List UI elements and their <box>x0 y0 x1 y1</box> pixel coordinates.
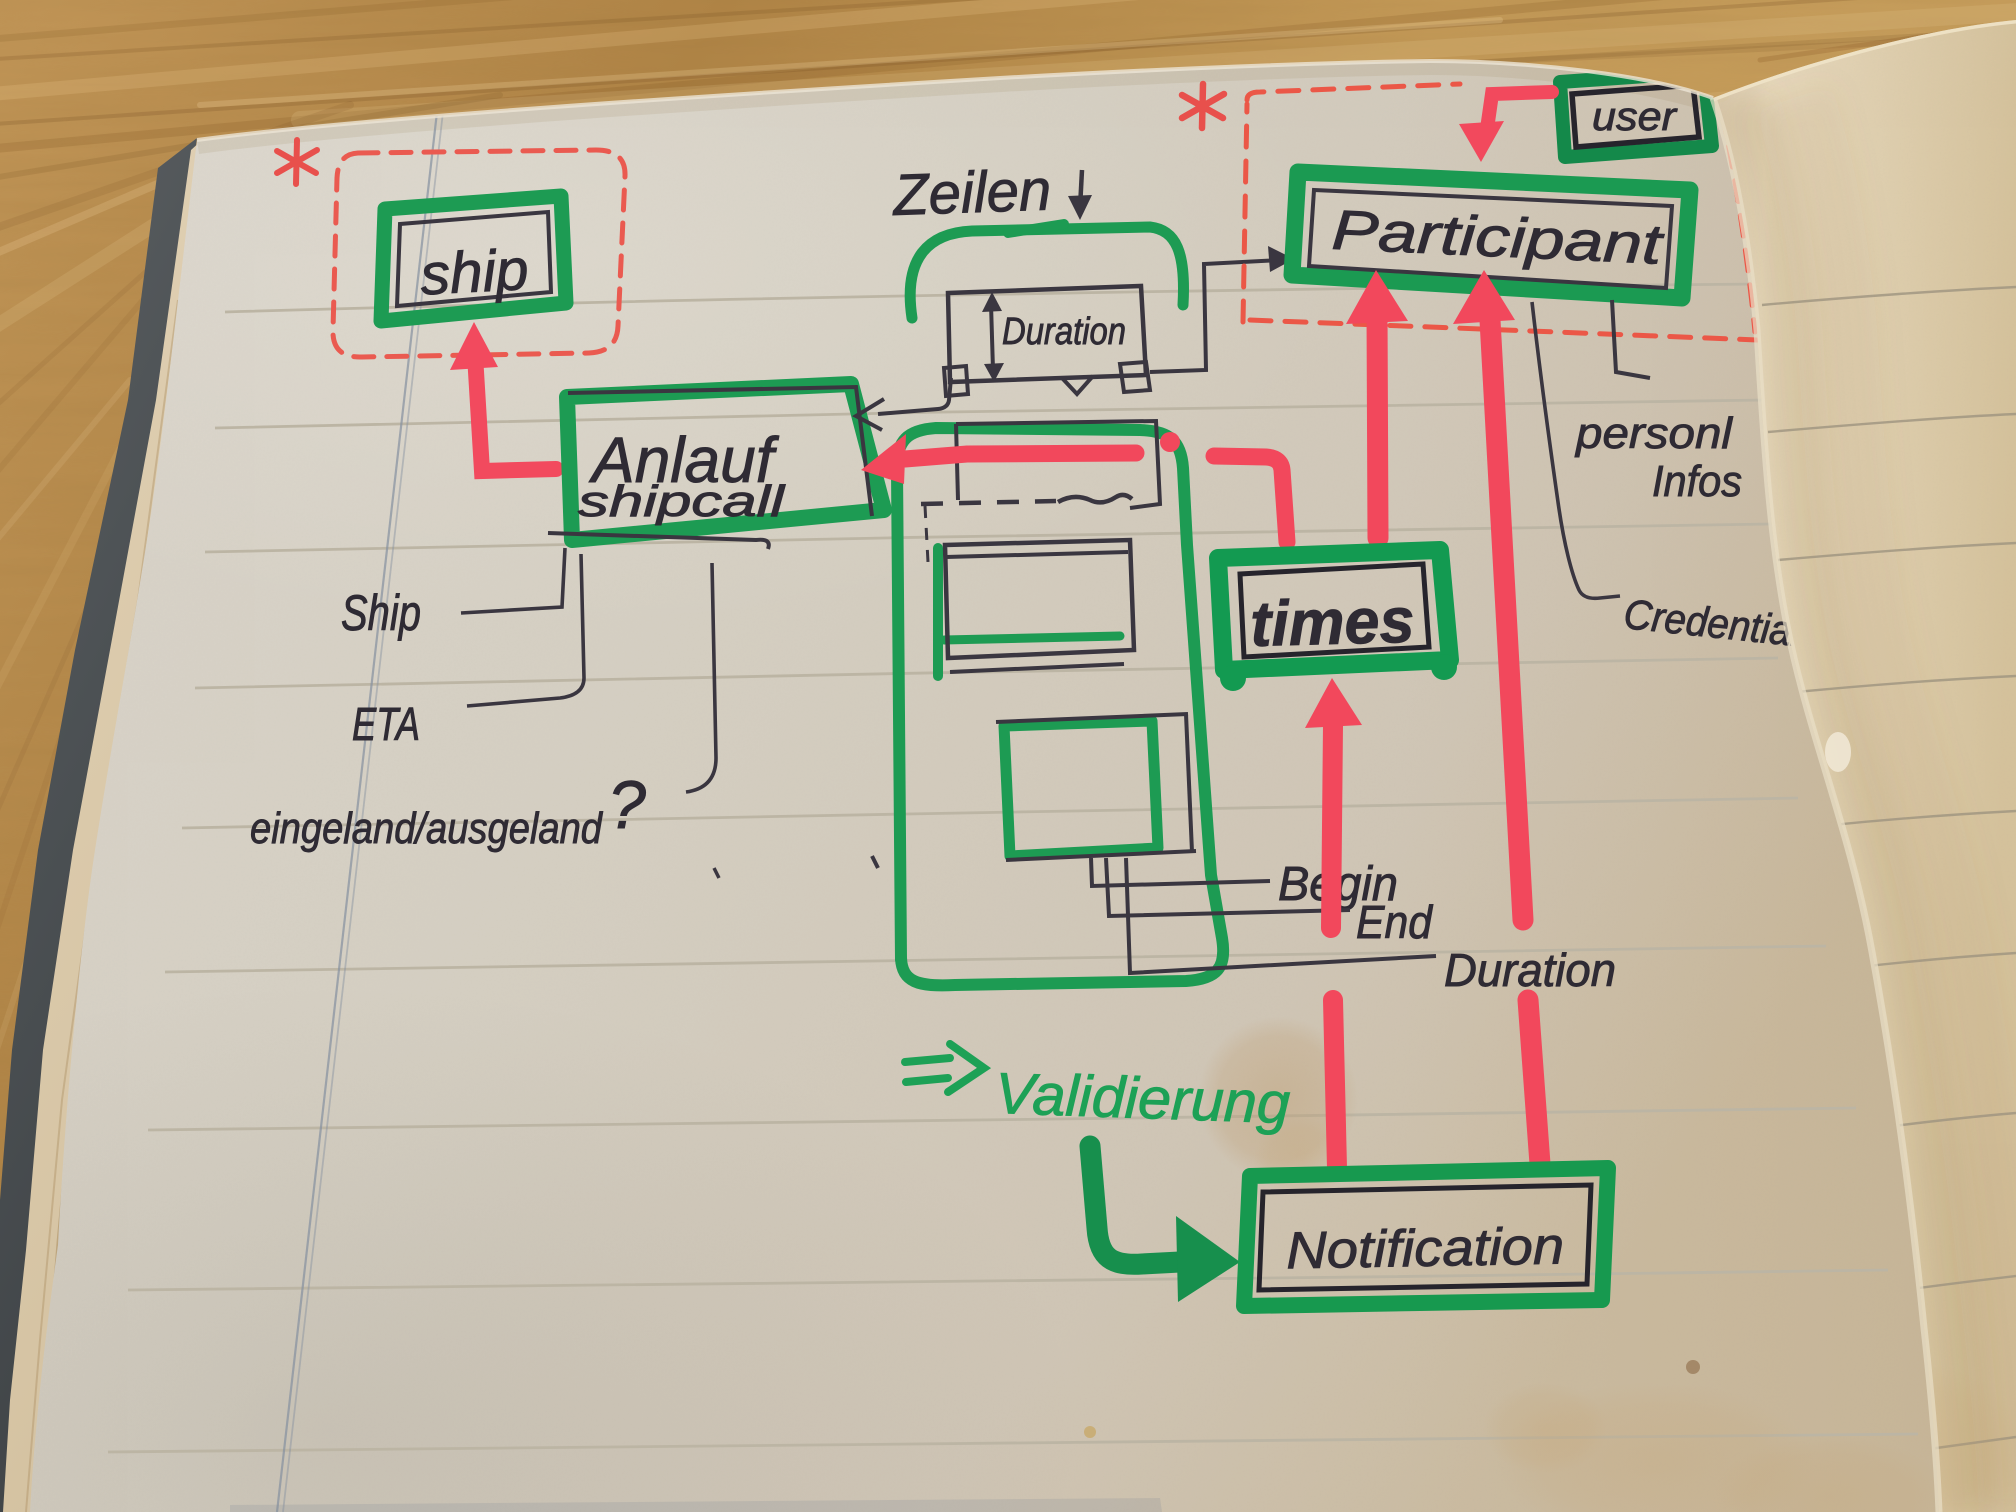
svg-text:times: times <box>1249 584 1415 660</box>
svg-text:Validierung: Validierung <box>994 1061 1291 1136</box>
svg-text:personl: personl <box>1574 409 1733 458</box>
svg-text:Notification: Notification <box>1286 1217 1565 1280</box>
svg-text:Duration: Duration <box>1002 311 1126 353</box>
svg-text:user: user <box>1592 95 1678 139</box>
svg-text:ship: ship <box>419 237 530 308</box>
svg-text:Zeilen: Zeilen <box>890 158 1052 229</box>
svg-text:shipcall: shipcall <box>578 477 786 526</box>
svg-text:?: ? <box>608 767 646 843</box>
svg-text:Infos: Infos <box>1652 457 1742 506</box>
svg-text:End: End <box>1356 896 1433 948</box>
svg-text:eingeland/ausgeland: eingeland/ausgeland <box>250 804 603 853</box>
svg-text:ETA: ETA <box>352 698 420 750</box>
svg-text:Ship: Ship <box>341 585 421 641</box>
svg-text:Duration: Duration <box>1444 944 1616 996</box>
